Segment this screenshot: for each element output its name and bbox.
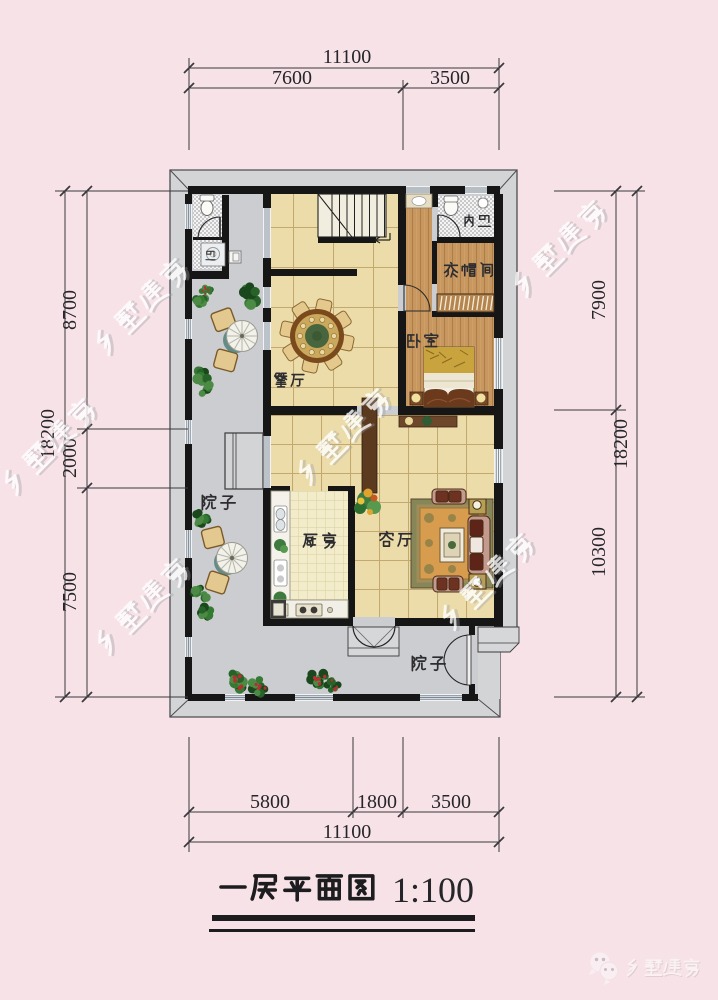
svg-text:1:100: 1:100 <box>392 870 474 910</box>
svg-text:7600: 7600 <box>272 67 312 89</box>
svg-text:7900: 7900 <box>588 280 610 320</box>
svg-text:10300: 10300 <box>588 527 610 577</box>
svg-text:11100: 11100 <box>323 46 372 68</box>
svg-text:7500: 7500 <box>59 572 81 612</box>
svg-text:5800: 5800 <box>250 791 290 813</box>
svg-text:3500: 3500 <box>430 67 470 89</box>
svg-text:8700: 8700 <box>59 290 81 330</box>
svg-text:3500: 3500 <box>431 791 471 813</box>
svg-text:18200: 18200 <box>610 419 632 469</box>
svg-text:11100: 11100 <box>323 821 372 843</box>
svg-text:1800: 1800 <box>357 791 397 813</box>
